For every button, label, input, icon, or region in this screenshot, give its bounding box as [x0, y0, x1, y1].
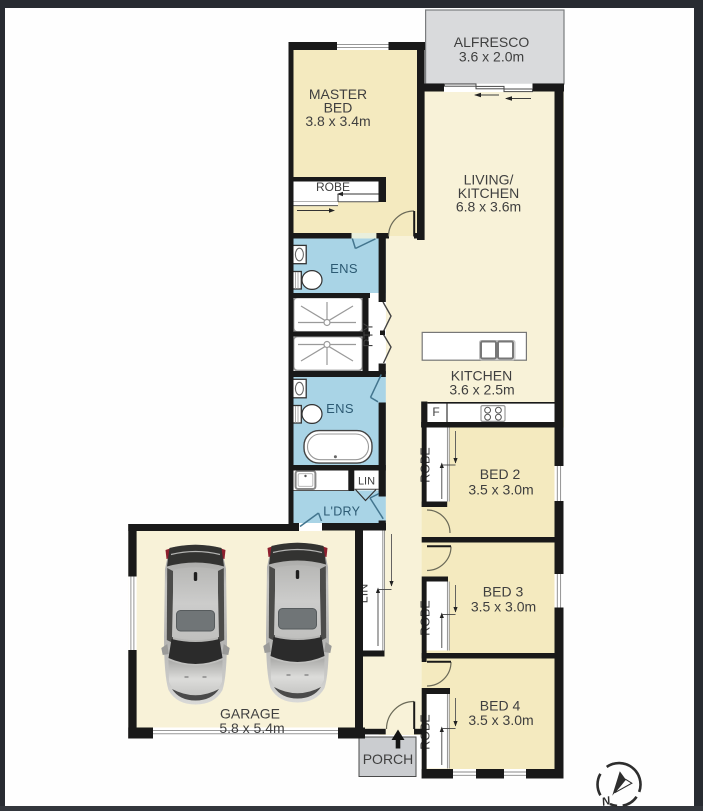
svg-text:PTY: PTY — [362, 322, 376, 347]
svg-text:F: F — [432, 405, 439, 419]
svg-text:3.5 x 3.0m: 3.5 x 3.0m — [468, 482, 533, 498]
svg-text:ENS: ENS — [326, 401, 354, 416]
svg-text:BED 3: BED 3 — [483, 584, 524, 600]
svg-text:BED 2: BED 2 — [480, 466, 521, 482]
svg-text:3.6 x 2.5m: 3.6 x 2.5m — [449, 382, 514, 398]
svg-text:6.8 x 3.6m: 6.8 x 3.6m — [456, 199, 521, 215]
svg-text:ENS: ENS — [330, 261, 358, 276]
svg-text:3.6 x 2.0m: 3.6 x 2.0m — [459, 49, 524, 65]
svg-text:ROBE: ROBE — [316, 180, 350, 194]
svg-text:L'DRY: L'DRY — [323, 505, 360, 519]
svg-text:3.5 x 3.0m: 3.5 x 3.0m — [468, 712, 533, 728]
svg-text:LIN: LIN — [358, 476, 375, 488]
svg-text:3.5 x 3.0m: 3.5 x 3.0m — [471, 599, 536, 615]
svg-text:3.8 x 3.4m: 3.8 x 3.4m — [305, 113, 370, 129]
svg-text:PORCH: PORCH — [363, 751, 414, 767]
svg-text:5.8 x 5.4m: 5.8 x 5.4m — [219, 720, 284, 736]
